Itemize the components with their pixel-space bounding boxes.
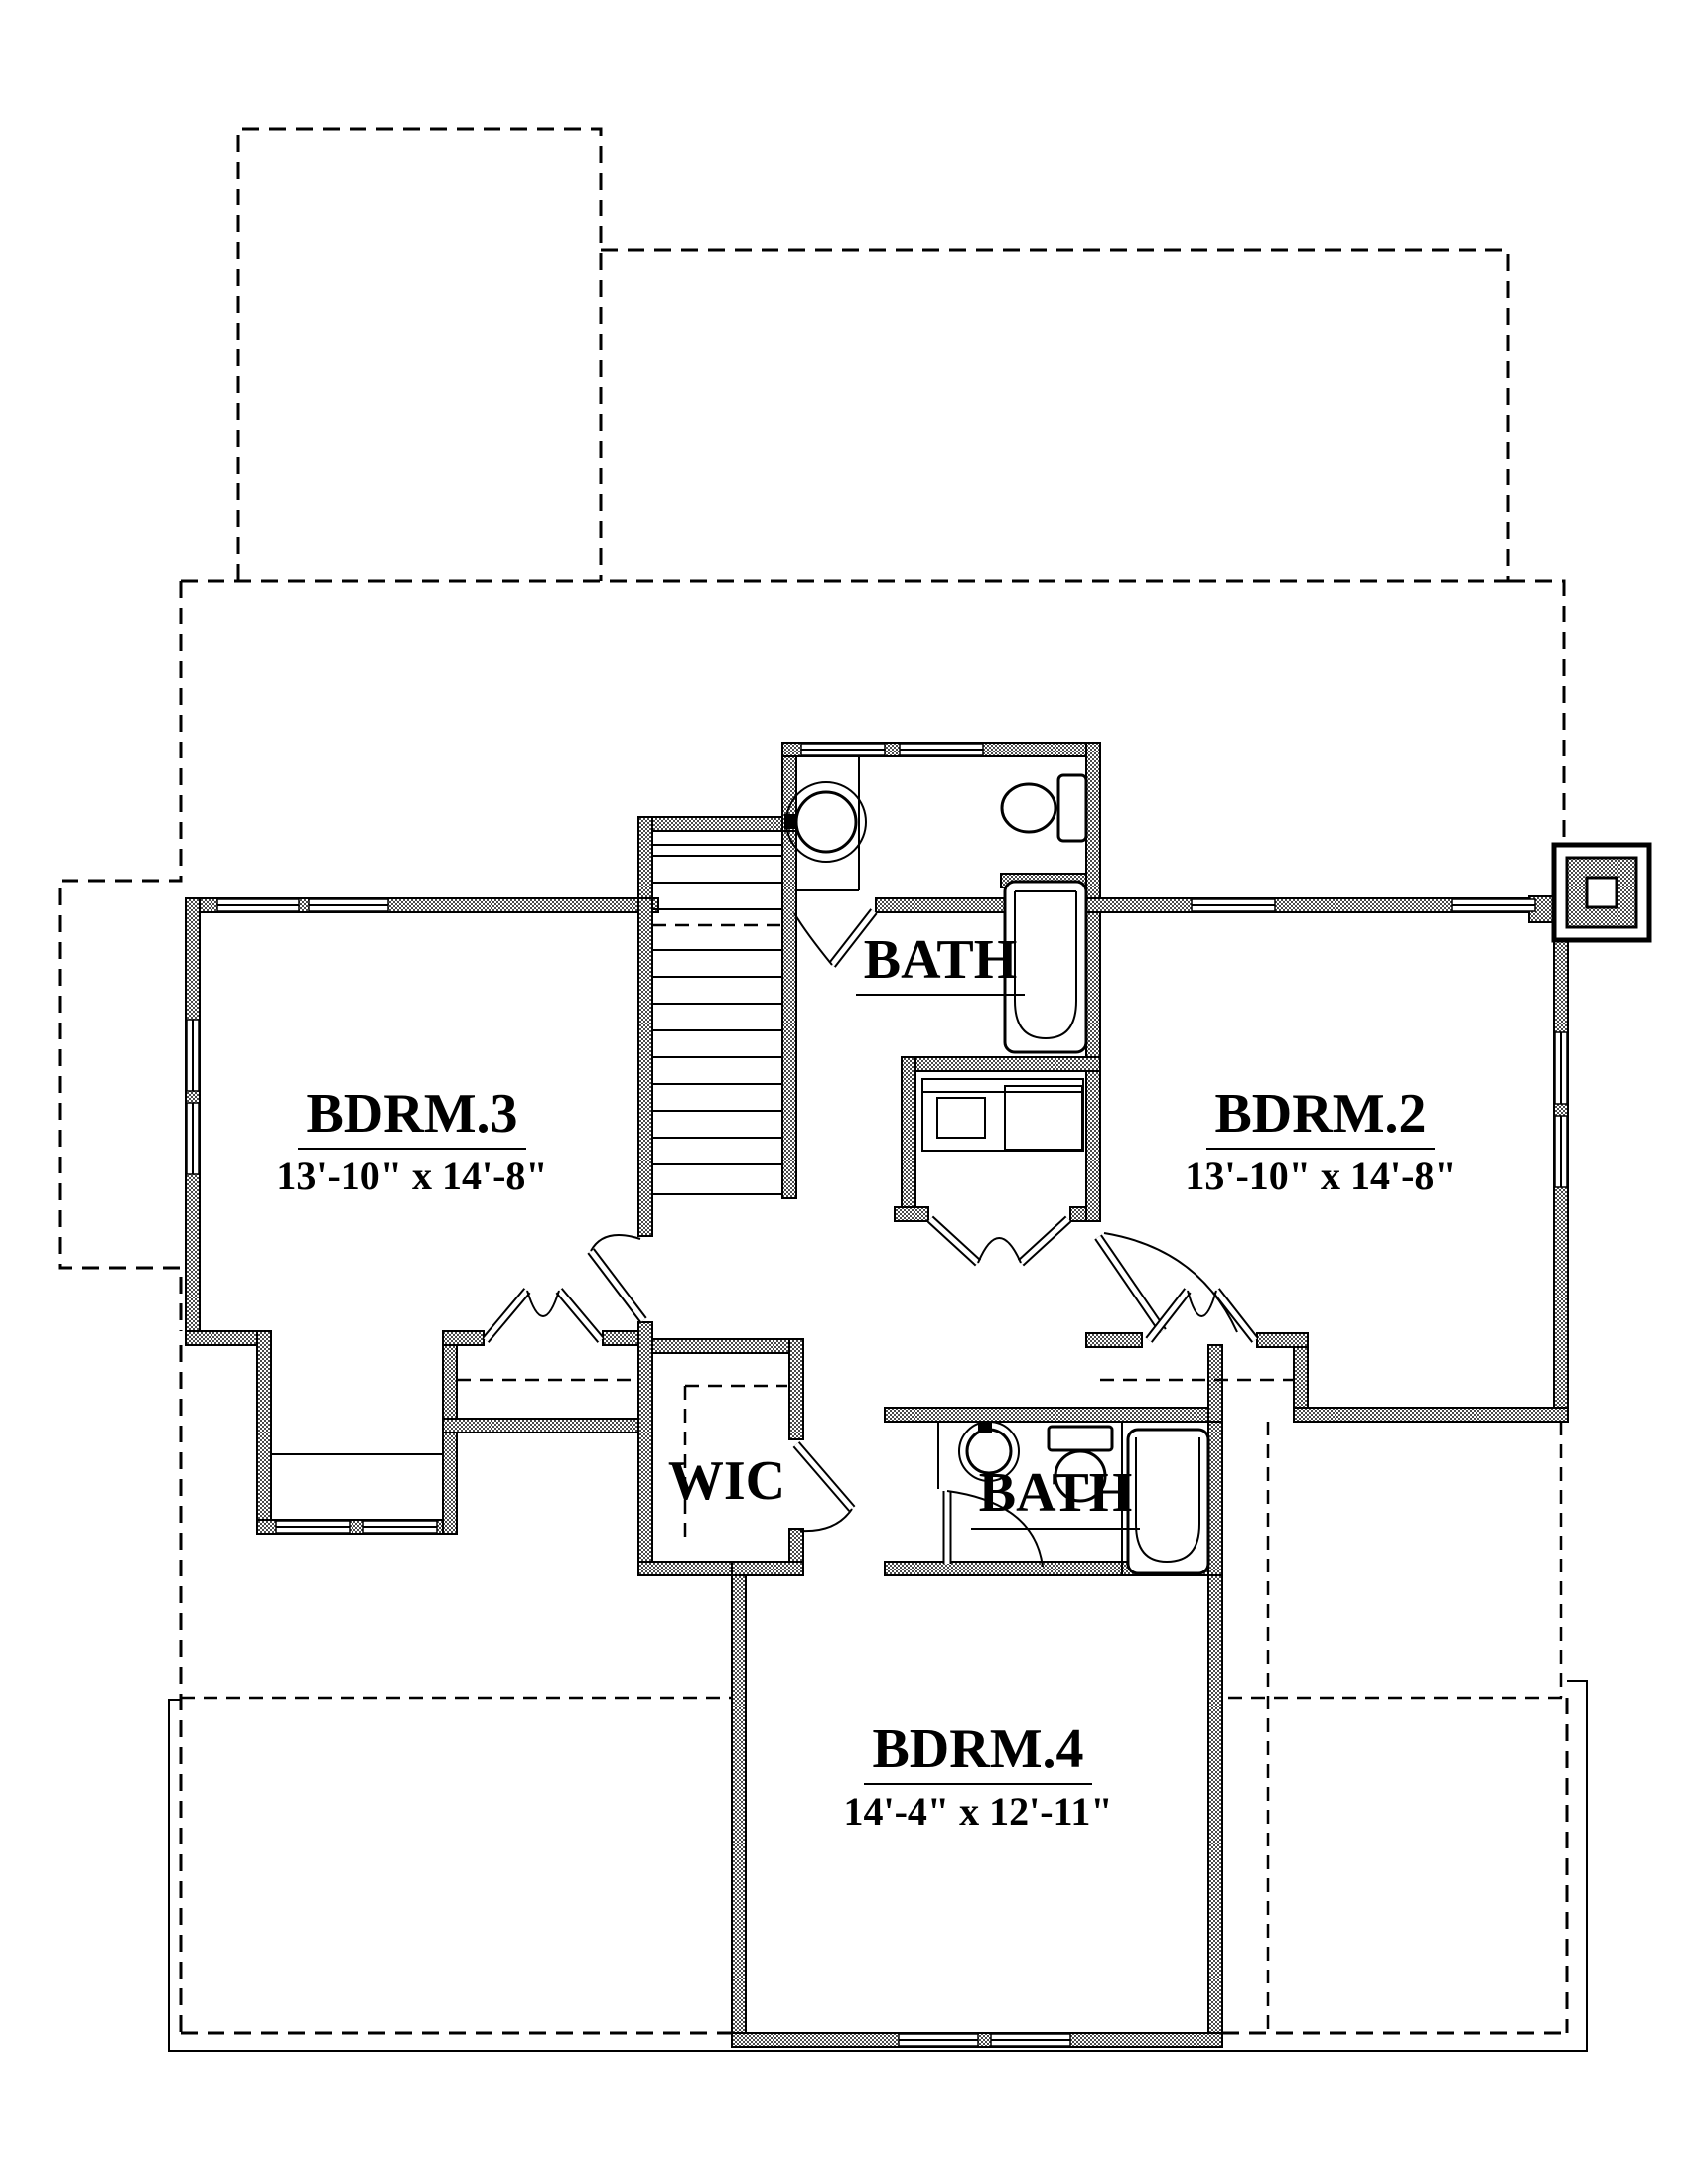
room-dims-bdrm3: 13'-10" x 14'-8": [276, 1154, 547, 1198]
sink-icon: [784, 782, 866, 862]
room-dims-bdrm4: 14'-4" x 12'-11": [843, 1789, 1112, 1834]
toilet-icon: [1002, 775, 1086, 841]
window: [1452, 899, 1535, 911]
room-label-wic: WIC: [668, 1450, 785, 1512]
room-dims-bdrm2: 13'-10" x 14'-8": [1185, 1154, 1456, 1198]
door-bdrm3-closet: [486, 1291, 601, 1340]
room-label-bath-upper: BATH: [864, 929, 1018, 991]
chimney: [1554, 845, 1649, 940]
bathtub-icon: [1005, 882, 1086, 1052]
window: [309, 899, 388, 911]
room-label-bath-lower: BATH: [979, 1462, 1133, 1524]
door-upper-bath: [794, 911, 874, 965]
window: [899, 2034, 978, 2046]
floor-plan-page: BATH BDRM.3 13'-10" x 14'-8" BDRM.2 13'-…: [0, 0, 1688, 2184]
window: [187, 1020, 199, 1091]
window: [1192, 899, 1275, 911]
room-label-bdrm2: BDRM.2: [1214, 1083, 1426, 1145]
door-bdrm2-closet: [1149, 1291, 1255, 1340]
door-wic: [796, 1444, 852, 1531]
window: [801, 744, 885, 755]
vanity-counter: [922, 1079, 1083, 1151]
window: [900, 744, 983, 755]
door-bdrm3-entry: [591, 1235, 643, 1320]
window: [363, 1521, 437, 1533]
window: [276, 1521, 350, 1533]
window: [217, 899, 299, 911]
door-vanity: [930, 1219, 1068, 1263]
window: [991, 2034, 1070, 2046]
floor-plan-drawing: BATH BDRM.3 13'-10" x 14'-8" BDRM.2 13'-…: [0, 0, 1688, 2184]
staircase: [652, 845, 782, 1194]
room-label-bdrm3: BDRM.3: [306, 1083, 517, 1145]
room-label-bdrm4: BDRM.4: [872, 1718, 1083, 1780]
window: [187, 1103, 199, 1174]
bathtub-icon: [1128, 1430, 1208, 1573]
window: [1555, 1032, 1567, 1104]
window: [1555, 1116, 1567, 1187]
